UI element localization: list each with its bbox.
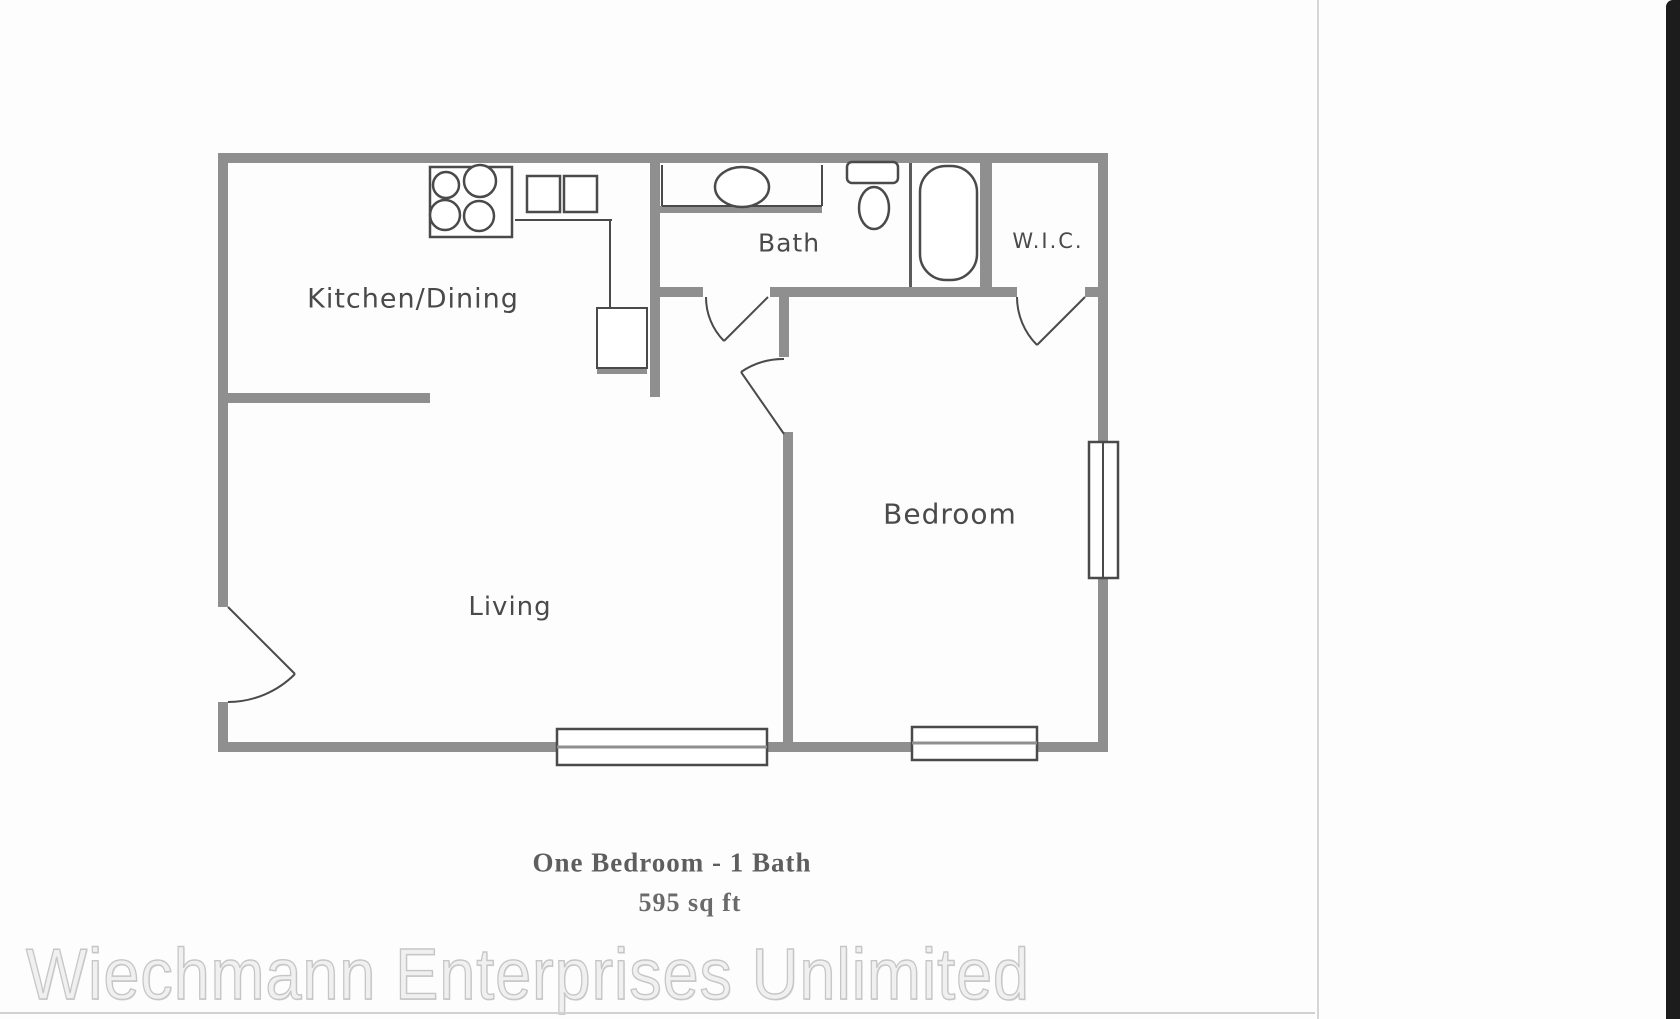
- bedroom-south-window: [912, 727, 1037, 760]
- room-label-kitchen-dining: Kitchen/Dining: [307, 284, 519, 315]
- wall-top: [218, 153, 1108, 163]
- wall-wic-south-right: [1085, 287, 1098, 297]
- toilet-icon: [847, 162, 898, 229]
- floor-plan-drawing: [0, 0, 1680, 1019]
- plan-area-text: 595 sq ft: [639, 888, 742, 918]
- plan-title: One Bedroom - 1 Bath: [532, 848, 811, 879]
- room-label-bedroom: Bedroom: [883, 498, 1017, 531]
- wall-wic-south-left: [992, 287, 1017, 297]
- wall-bedroom-divider-upper: [779, 297, 789, 357]
- wall-tub-wic-divider: [980, 163, 992, 297]
- wall-bath-south-left: [660, 287, 703, 297]
- room-label-living: Living: [468, 592, 551, 622]
- bath-door-swing-icon: [706, 297, 768, 341]
- wic-door-swing-icon: [1017, 297, 1085, 345]
- company-watermark: Wiechmann Enterprises Unlimited: [26, 934, 1030, 1016]
- bathtub-icon: [920, 166, 977, 280]
- stove-burners-icon: [430, 165, 512, 237]
- scanned-floor-plan-page: Kitchen/Dining Bath W.I.C. Living Bedroo…: [0, 0, 1680, 1019]
- scan-bottom-line: [0, 1012, 1315, 1014]
- vanity-sink-icon: [715, 167, 769, 207]
- living-window: [557, 729, 767, 765]
- utility-closet: [597, 308, 647, 368]
- double-sink-icon: [527, 176, 597, 212]
- scan-fold-line: [1317, 0, 1319, 1019]
- wall-kitchen-bath-divider: [650, 163, 660, 397]
- bedroom-east-window: [1089, 442, 1118, 578]
- entry-door-swing-icon: [228, 607, 295, 702]
- wall-toilet-partition: [909, 163, 912, 287]
- wall-bedroom-divider-lower: [783, 432, 793, 742]
- wall-kitchen-living-stub: [228, 393, 430, 403]
- bedroom-door-swing-icon: [741, 359, 784, 434]
- kitchen-counter-line: [515, 220, 612, 308]
- room-label-wic: W.I.C.: [1012, 229, 1083, 253]
- room-label-bath: Bath: [758, 229, 820, 258]
- wall-left-upper: [218, 153, 228, 607]
- scan-edge-strip: [1666, 0, 1680, 1019]
- wall-bath-south-right: [770, 287, 992, 297]
